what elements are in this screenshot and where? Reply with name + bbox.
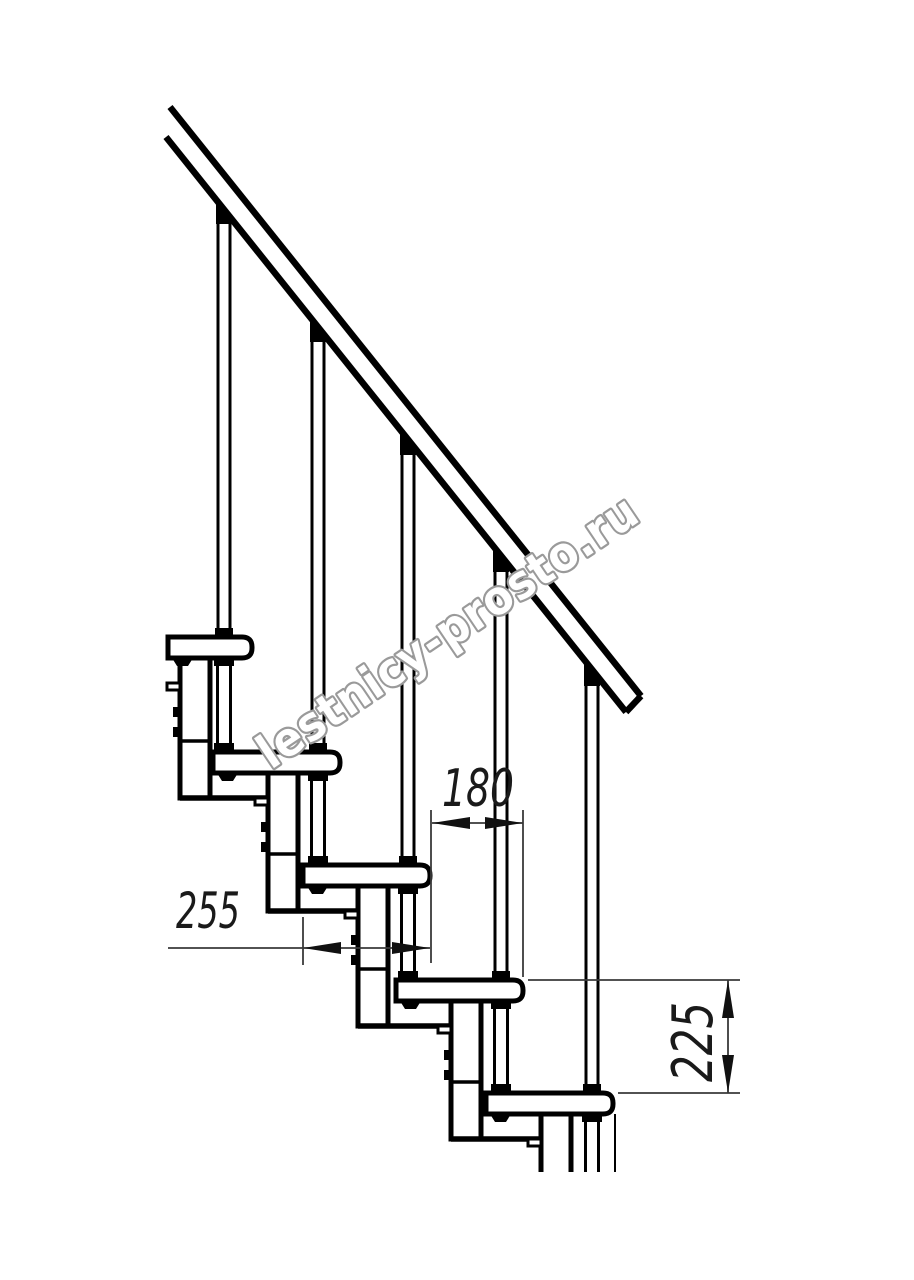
riser-post-2 [308,773,328,865]
bolt-mark [351,955,359,965]
riser-post-4 [491,1001,511,1093]
baluster-5 [583,662,601,1093]
dimension-step-offset: 180 [432,759,523,977]
support-module-5 [528,1114,615,1172]
tread-1 [168,637,252,658]
dimension-label-180: 180 [442,759,514,819]
bolt-mark [444,1050,452,1060]
support-module-3 [345,886,453,1026]
bolt-mark [261,822,269,832]
bolt-mark [444,1070,452,1080]
dimension-label-255: 255 [176,882,240,940]
support-module-4 [438,1001,543,1139]
bolt-mark [173,727,181,737]
riser-post-3 [398,886,418,980]
tread-5 [486,1093,613,1114]
bolt-mark [173,707,181,717]
dimension-step-rise: 225 [528,980,740,1093]
treads [168,637,613,1122]
arrow-left [303,942,341,954]
bolt-mark [351,935,359,945]
riser-post-5 [582,1114,602,1172]
dimension-label-225: 225 [661,1002,726,1082]
handrail-end-cap [626,696,641,712]
riser-post-1 [214,658,234,752]
tread-3 [303,865,430,886]
support-module-2 [255,773,360,911]
arrow-right [392,942,430,954]
staircase-technical-drawing: 255 180 225 lestnicy-prosto.ru [0,0,914,1280]
bolt-mark [261,842,269,852]
tread-4 [396,980,523,1001]
staircase-drawing-page: 255 180 225 lestnicy-prosto.ru [0,0,914,1280]
baluster-1 [215,200,233,637]
